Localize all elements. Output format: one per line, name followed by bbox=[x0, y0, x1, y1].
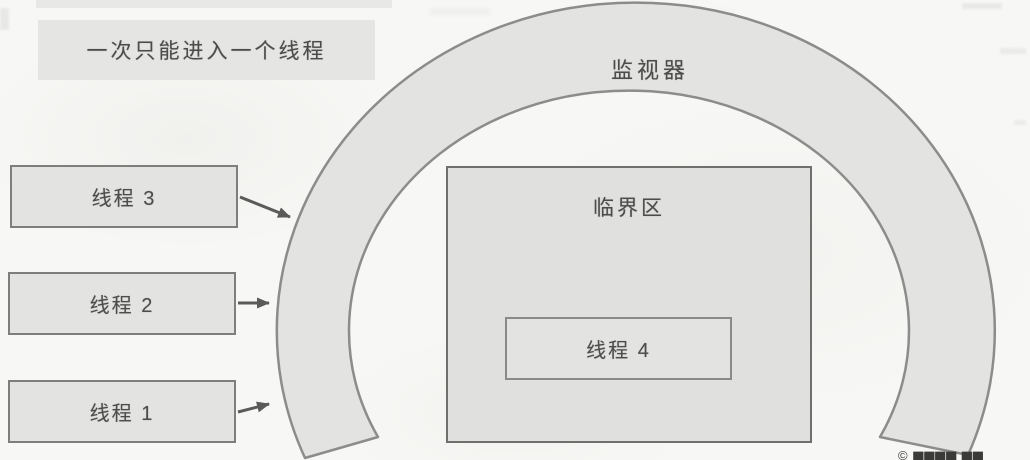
scanned-diagram-page: 一次只能进入一个线程 监视器 临界区 线程 4 线程 3 线程 2 线程 1 ©… bbox=[0, 0, 1030, 460]
critical-section-box: 临界区 bbox=[446, 166, 812, 443]
thread-box-1: 线程 1 bbox=[8, 380, 236, 443]
thread-2-label: 线程 2 bbox=[90, 289, 155, 318]
caption-box: 一次只能进入一个线程 bbox=[38, 20, 375, 80]
thread-4-label: 线程 4 bbox=[586, 334, 651, 363]
arrow-thread1 bbox=[238, 404, 269, 412]
critical-section-label: 临界区 bbox=[448, 192, 810, 222]
arrow-thread3 bbox=[240, 197, 290, 217]
thread-box-4: 线程 4 bbox=[505, 317, 732, 380]
monitor-label: 监视器 bbox=[555, 53, 745, 85]
caption-label: 一次只能进入一个线程 bbox=[87, 35, 327, 65]
watermark-text: © ▆▆▆▆ ▆▆ bbox=[898, 449, 1028, 460]
thread-box-3: 线程 3 bbox=[10, 165, 238, 228]
thread-3-label: 线程 3 bbox=[92, 182, 157, 211]
thread-1-label: 线程 1 bbox=[90, 397, 155, 426]
thread-box-2: 线程 2 bbox=[8, 272, 236, 335]
